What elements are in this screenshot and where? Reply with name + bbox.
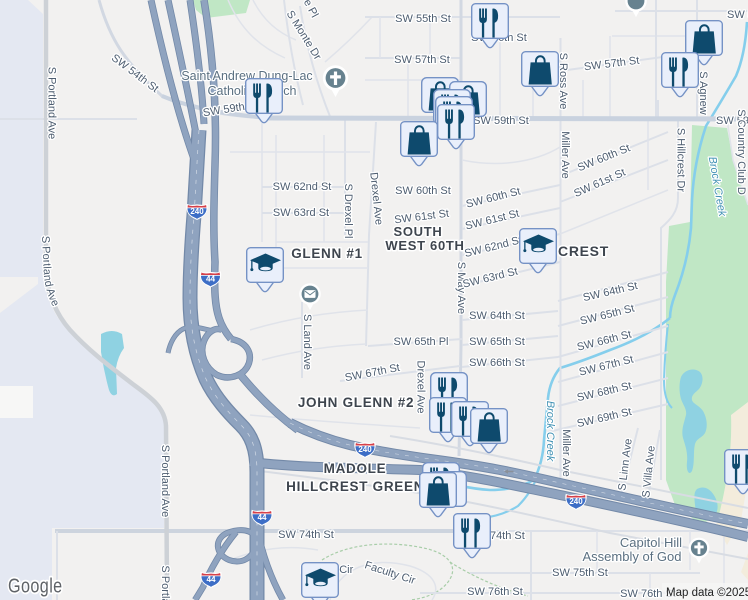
svg-text:240: 240	[358, 445, 372, 454]
svg-text:44: 44	[206, 275, 216, 284]
svg-text:Miller Ave: Miller Ave	[559, 131, 571, 178]
svg-text:GLENN #1: GLENN #1	[291, 246, 363, 261]
svg-text:Brock Creek: Brock Creek	[544, 401, 556, 462]
svg-text:SW 65th St: SW 65th St	[469, 336, 525, 348]
svg-text:CREST: CREST	[558, 243, 609, 259]
svg-text:Capitol Hill: Capitol Hill	[620, 535, 682, 550]
svg-text:44: 44	[257, 513, 267, 522]
svg-text:S Portland Ave: S Portland Ave	[159, 445, 171, 518]
svg-text:SW 63rd St: SW 63rd St	[273, 207, 329, 219]
svg-text:SW 57th St: SW 57th St	[394, 54, 450, 66]
svg-text:SW 75th St: SW 75th St	[552, 567, 608, 579]
svg-text:44: 44	[206, 575, 216, 584]
svg-text:S Portland Ave: S Portland Ave	[46, 67, 58, 140]
svg-text:Map data ©2025: Map data ©2025	[666, 587, 748, 599]
svg-text:SW 65th Pl: SW 65th Pl	[393, 336, 448, 348]
svg-text:S Portla: S Portla	[159, 565, 171, 600]
svg-text:S Country Club D: S Country Club D	[735, 109, 747, 195]
svg-text:SW 60th St: SW 60th St	[395, 185, 451, 197]
svg-text:SW 64th St: SW 64th St	[469, 310, 525, 322]
svg-text:S Hillcrest Dr: S Hillcrest Dr	[675, 128, 687, 193]
svg-text:JOHN GLENN #2: JOHN GLENN #2	[298, 395, 414, 410]
svg-text:Drexel Ave: Drexel Ave	[415, 361, 427, 414]
svg-text:HILLCREST GREENS: HILLCREST GREENS	[286, 479, 434, 494]
svg-text:240: 240	[190, 207, 204, 216]
svg-text:Google: Google	[8, 574, 63, 597]
svg-text:S Land Ave: S Land Ave	[301, 314, 313, 370]
svg-text:SW 76th St: SW 76th St	[467, 586, 523, 598]
svg-text:SW 74th St: SW 74th St	[278, 529, 334, 541]
svg-text:SW 55th St: SW 55th St	[395, 13, 451, 25]
svg-text:SW 5: SW 5	[727, 9, 748, 21]
svg-text:MADOLE: MADOLE	[324, 461, 387, 476]
svg-text:WEST 60TH: WEST 60TH	[385, 238, 464, 253]
svg-text:SOUTH: SOUTH	[394, 224, 443, 239]
svg-text:Assembly of God: Assembly of God	[583, 549, 682, 564]
svg-text:SW 66th St: SW 66th St	[469, 357, 525, 369]
svg-text:240: 240	[569, 497, 583, 506]
svg-text:S Drexel Pl: S Drexel Pl	[342, 183, 354, 238]
svg-text:Miller Ave: Miller Ave	[560, 429, 572, 476]
svg-text:SW 62nd St: SW 62nd St	[273, 181, 332, 193]
